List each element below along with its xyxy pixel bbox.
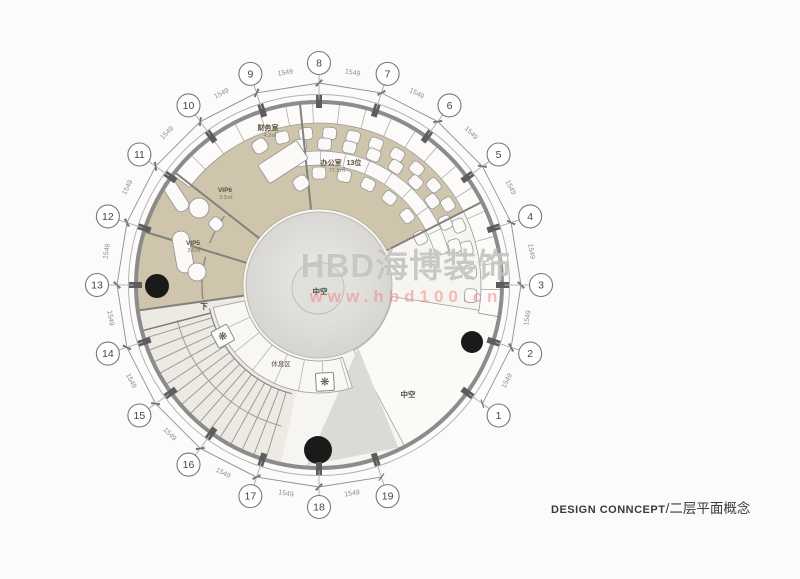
vip6-room-area: 3.5㎡ bbox=[219, 193, 233, 201]
plant-icon: ❋ bbox=[218, 331, 227, 343]
dimension-label: 1549 bbox=[344, 489, 361, 498]
dimension-label: 1549 bbox=[501, 372, 514, 389]
dimension-chord bbox=[117, 223, 127, 285]
grid-bubble-number: 13 bbox=[91, 280, 103, 292]
rest-area-label: 休息区 bbox=[271, 359, 291, 368]
dimension-label: 1549 bbox=[214, 467, 231, 480]
dimension-label: 1549 bbox=[121, 179, 134, 196]
dimension-label: 1549 bbox=[105, 310, 114, 327]
dimension-label: 1549 bbox=[159, 125, 175, 141]
grid-bubble-number: 19 bbox=[382, 491, 394, 503]
dimension-chord bbox=[319, 477, 381, 487]
dimension-chord bbox=[257, 477, 319, 487]
grid-bubble-number: 7 bbox=[385, 68, 391, 80]
black-column-marker bbox=[145, 274, 169, 298]
plant-icon: ❋ bbox=[320, 377, 329, 389]
design-concept-label: DESIGN CONNCEPT bbox=[551, 504, 665, 516]
dimension-label: 1549 bbox=[526, 243, 535, 260]
atrium-side-label: 中空 bbox=[401, 389, 416, 399]
dimension-label: 1549 bbox=[213, 87, 230, 100]
dimension-label: 1549 bbox=[161, 427, 177, 443]
vip5-room-label: VIP5 bbox=[186, 240, 200, 247]
grid-bubble-number: 16 bbox=[183, 459, 195, 471]
dimension-label: 1549 bbox=[102, 243, 111, 260]
finance-room-area: 4.2㎡ bbox=[263, 131, 277, 139]
office-chair bbox=[312, 167, 326, 179]
dimension-label: 1549 bbox=[503, 179, 516, 196]
dimension-label: 1549 bbox=[408, 87, 425, 100]
office-seats: 13位 bbox=[347, 158, 362, 167]
dimension-chord bbox=[257, 83, 319, 93]
grid-bubble-number: 2 bbox=[527, 348, 533, 360]
grid-bubble-number: 18 bbox=[313, 502, 325, 514]
office-name: 办公室 bbox=[321, 158, 342, 167]
plan-geometry: ❋❋ bbox=[129, 95, 510, 476]
grid-bubble-number: 3 bbox=[538, 280, 544, 292]
floor-plan-canvas: ❋❋ 财务室 4.2㎡ 办公室13位 77.5㎡ VIP6 3.5㎡ VIP5 … bbox=[0, 0, 800, 579]
grid-bubble-number: 9 bbox=[247, 68, 253, 80]
vip6-room-label: VIP6 bbox=[218, 187, 232, 194]
dimension-label: 1549 bbox=[344, 68, 361, 77]
dimension-chord bbox=[319, 83, 381, 93]
office-room-area: 77.5㎡ bbox=[329, 166, 346, 174]
vip5-table bbox=[188, 263, 206, 281]
title-block: DESIGN CONNCEPT/二层平面概念 bbox=[551, 497, 750, 518]
vip6-table bbox=[189, 198, 209, 218]
stairs-down-label: 下 bbox=[200, 302, 208, 311]
grid-bubble-number: 14 bbox=[102, 348, 114, 360]
office-chair bbox=[298, 127, 313, 140]
grid-bubble-number: 8 bbox=[316, 58, 322, 70]
grid-bubble-number: 10 bbox=[183, 100, 195, 112]
black-column-marker bbox=[304, 436, 332, 464]
dimension-label: 1549 bbox=[523, 310, 532, 327]
dimension-chord bbox=[117, 285, 127, 347]
dimension-tick bbox=[481, 399, 484, 408]
plan-name-label: 二层平面概念 bbox=[669, 501, 750, 516]
dimension-chord bbox=[511, 285, 521, 347]
grid-bubble-number: 6 bbox=[447, 100, 453, 112]
finance-room-label: 财务室 bbox=[257, 123, 279, 132]
grid-bubble-number: 15 bbox=[134, 410, 146, 422]
grid-bubble-number: 4 bbox=[527, 211, 533, 223]
dimension-label: 1549 bbox=[463, 125, 479, 141]
grid-bubble-number: 17 bbox=[245, 491, 257, 503]
design-sheet: ❋❋ 财务室 4.2㎡ 办公室13位 77.5㎡ VIP6 3.5㎡ VIP5 … bbox=[0, 0, 800, 579]
office-room-label: 办公室13位 bbox=[321, 158, 362, 167]
dimension-label: 1549 bbox=[278, 489, 295, 498]
grid-bubble-number: 5 bbox=[496, 149, 502, 161]
grid-bubble-number: 11 bbox=[134, 149, 145, 161]
dimension-chord bbox=[511, 223, 521, 285]
dimension-label: 1549 bbox=[124, 372, 137, 389]
dimension-label: 1549 bbox=[277, 68, 294, 77]
grid-bubble-number: 12 bbox=[102, 211, 114, 223]
vip5-room-area: 3.5㎡ bbox=[187, 246, 201, 254]
office-chair bbox=[464, 288, 477, 302]
atrium-center-label: 中空 bbox=[313, 286, 328, 296]
office-chair bbox=[342, 140, 358, 155]
office-chair bbox=[318, 138, 332, 151]
grid-bubble-number: 1 bbox=[496, 410, 502, 422]
office-chair bbox=[464, 264, 477, 279]
black-column-marker bbox=[461, 331, 483, 353]
